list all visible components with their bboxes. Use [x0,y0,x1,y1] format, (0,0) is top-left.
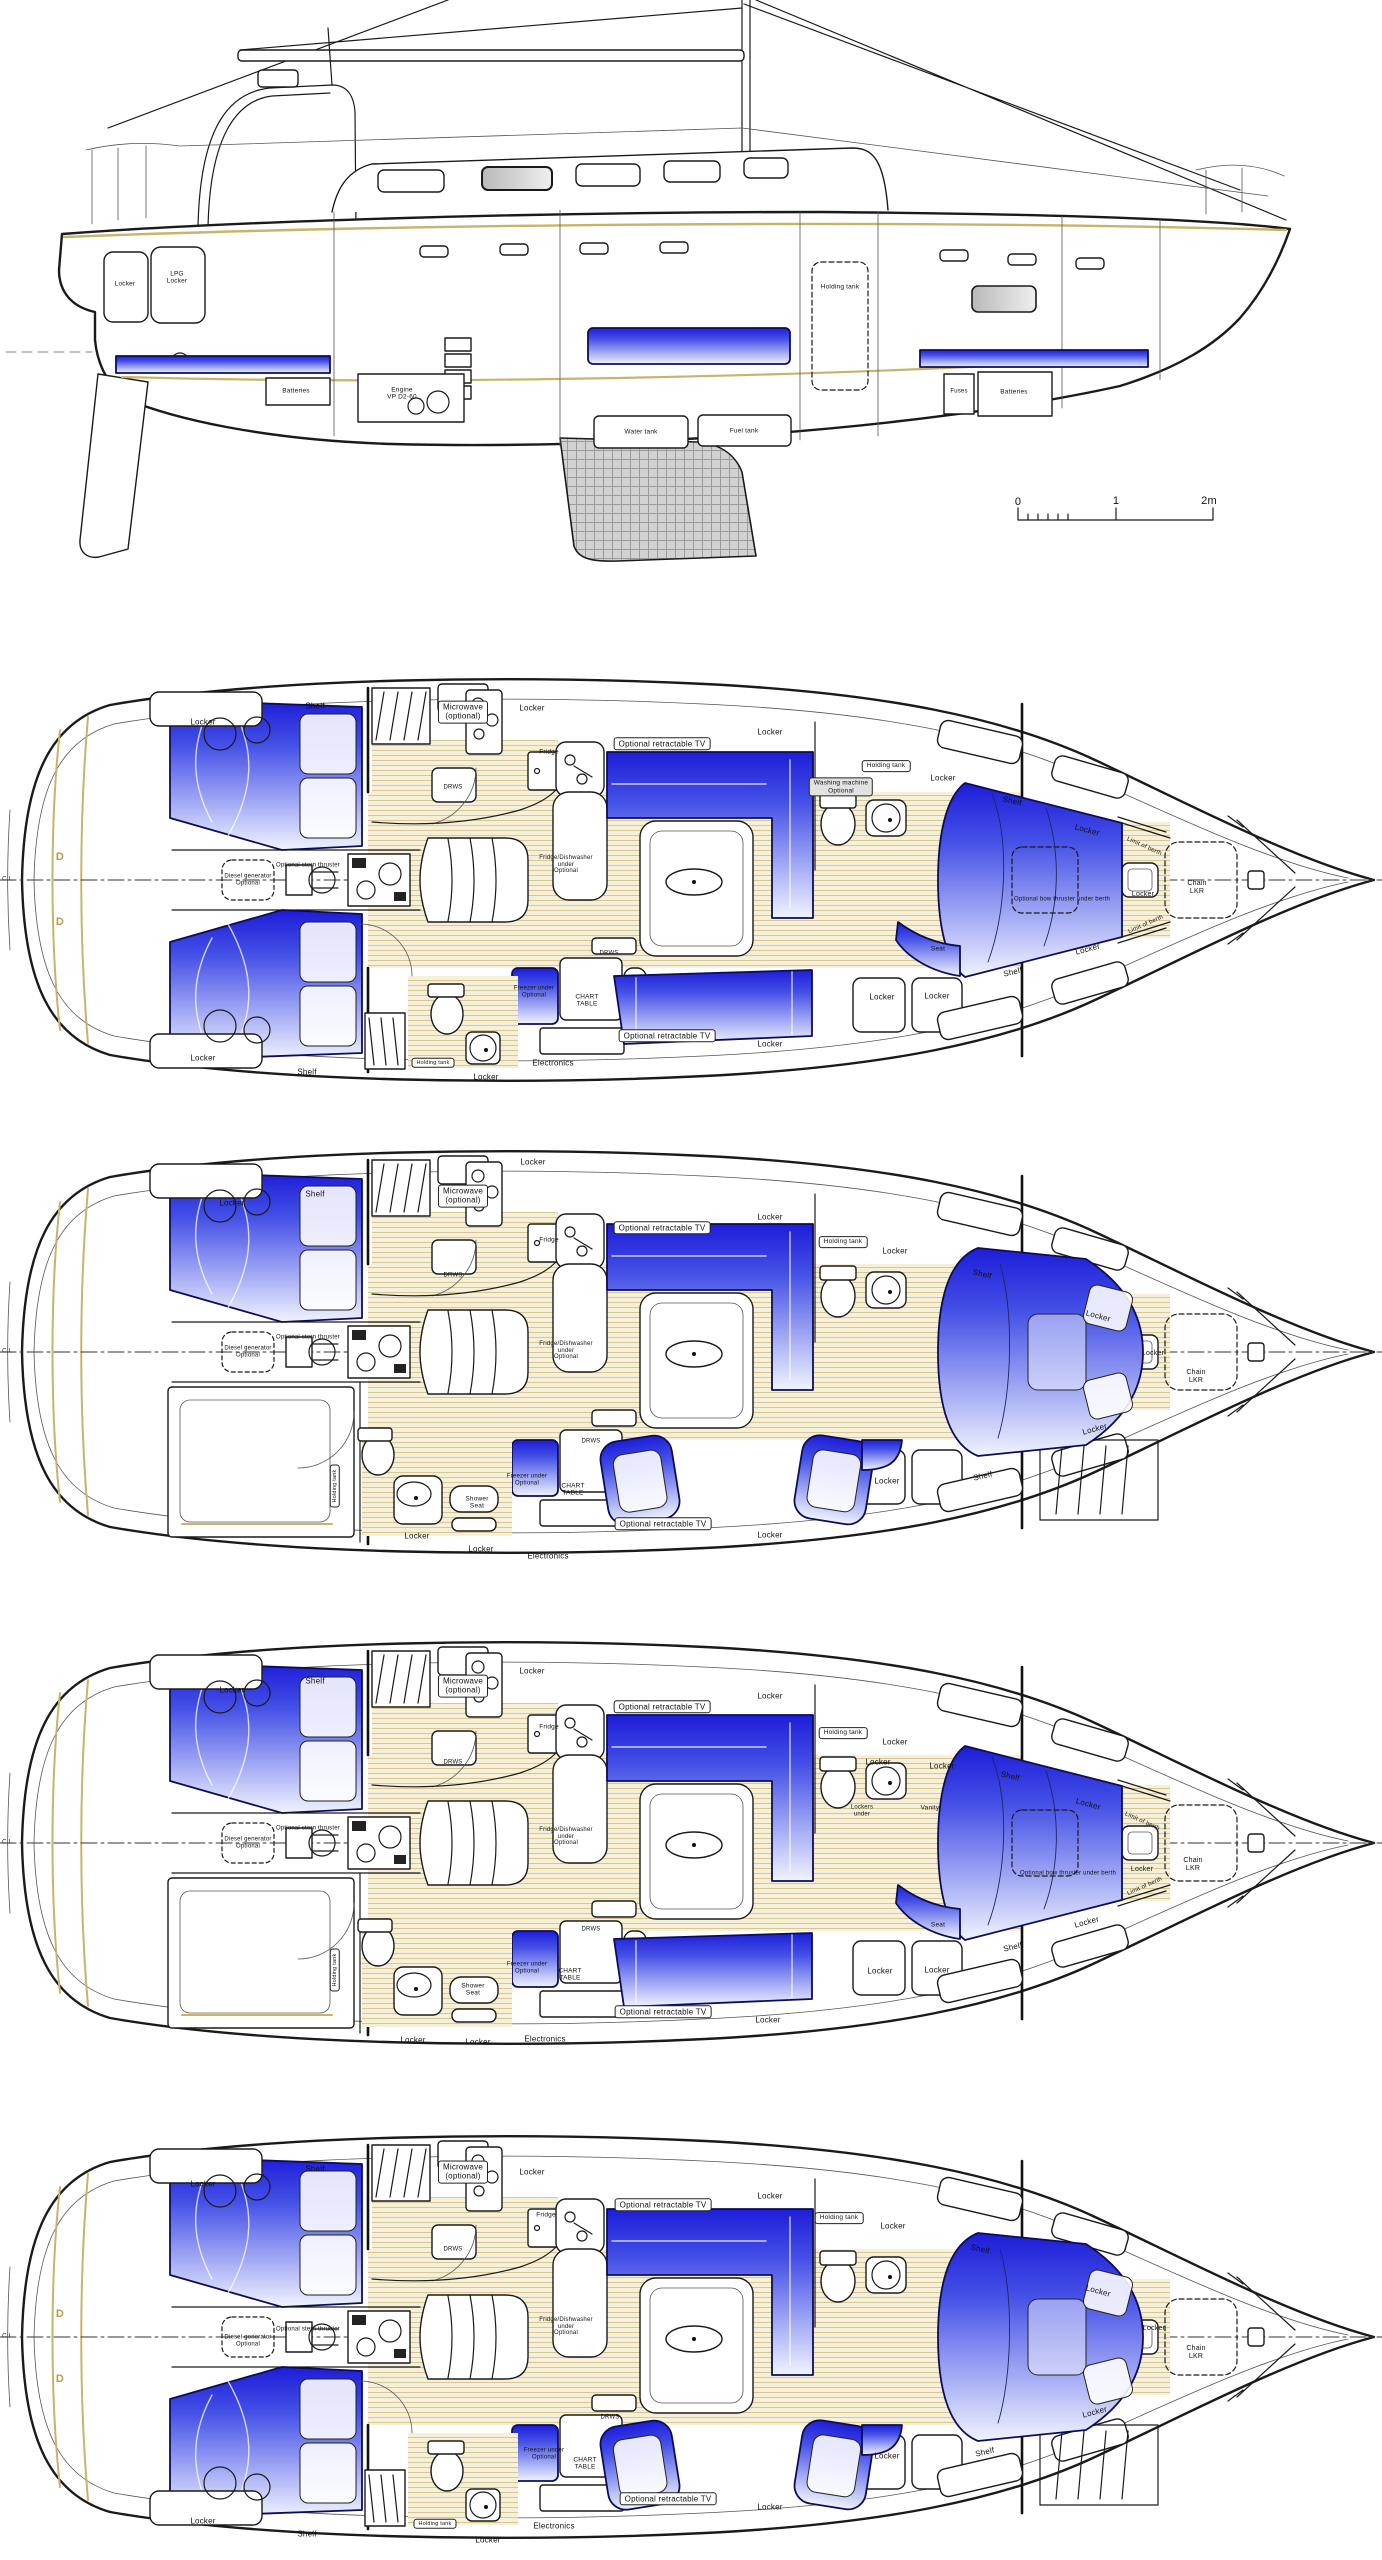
plan1-port-settee [614,970,812,1044]
cabin-window [378,170,444,192]
stern-arch [198,85,356,228]
plan2-island-berth [938,1248,1143,1456]
fuses-box [944,374,974,414]
plan4-island-berth [938,2233,1143,2441]
saloon-settee-cushion [588,328,790,364]
portlight [1076,258,1104,269]
batteries-box [978,372,1052,416]
companionway-step [445,338,471,351]
portlight [420,246,448,257]
yacht-technical-drawing-svg [0,0,1382,2560]
deck-plan-2 [0,1151,1382,1553]
deck-plan-4 [0,2136,1382,2538]
portlight [580,243,608,254]
scale-bar [1018,508,1213,520]
portlight [1008,254,1036,265]
hull-window [972,286,1036,312]
portlight [500,244,528,255]
rudder [80,374,148,557]
yacht-layout-drawing-canvas: LockerLPG LockerBatteriesEngine VP D2-60… [0,0,1382,2560]
companionway-step [445,354,471,367]
lpg-locker-box [151,247,205,323]
portlight [940,250,968,261]
stern-locker-box [104,252,148,322]
cabin-window [664,161,720,182]
backstay-line [108,0,448,128]
aft-berth-cushion [116,356,330,373]
water-tank-box [594,416,688,448]
forward-berth-cushion [920,350,1148,367]
keel [560,438,756,561]
boom [238,50,744,61]
fuel-tank-box [698,415,791,446]
batteries-box [266,378,330,405]
plan3-port-settee [614,1933,812,2007]
cabin-window [576,164,640,186]
portlight [660,242,688,253]
deck-plan-1 [0,679,1382,1081]
cabin-window [482,167,552,190]
side-profile-view [6,0,1290,561]
cabin-window [744,158,788,178]
deck-plan-3 [0,1642,1382,2044]
